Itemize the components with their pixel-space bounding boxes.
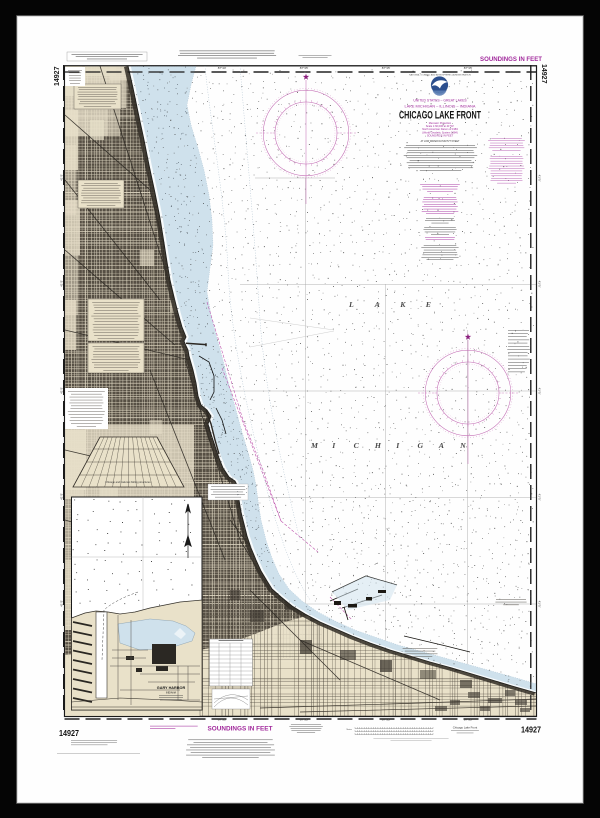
svg-text:87°35': 87°35' [382,718,391,722]
svg-text:41°5': 41°5' [60,174,64,181]
svg-text:SOUNDINGS IN FEET: SOUNDINGS IN FEET [480,56,542,63]
svg-text:Chicago Lake Front: Chicago Lake Front [453,726,478,730]
svg-text:41°5': 41°5' [538,494,542,501]
svg-text:87°35': 87°35' [464,66,473,70]
svg-text:SOUNDINGS IN FEET: SOUNDINGS IN FEET [208,726,273,733]
svg-text:Chicago and Calumet fishing st: Chicago and Calumet fishing structures [105,480,151,484]
svg-text:C: C [354,441,360,450]
svg-text:41°5': 41°5' [60,493,64,500]
svg-text:M: M [310,441,319,450]
svg-text:41°5': 41°5' [60,280,64,287]
svg-text:87°40': 87°40' [218,66,227,70]
svg-text:INDIANA: INDIANA [166,692,176,695]
svg-text:14927: 14927 [540,64,547,84]
svg-text:87°35': 87°35' [464,718,473,722]
svg-text:L: L [348,300,354,309]
svg-text:N: N [459,441,466,450]
svg-text:K: K [399,300,406,309]
svg-text:14927: 14927 [59,729,79,738]
svg-text:CHICAGO LAKE FRONT: CHICAGO LAKE FRONT [399,109,481,121]
svg-text:41°5': 41°5' [538,601,542,608]
svg-text:A: A [438,441,444,450]
svg-text:41°5': 41°5' [60,600,64,607]
svg-text:87°35': 87°35' [382,66,391,70]
svg-text:H: H [374,441,382,450]
svg-text:41°5': 41°5' [538,281,542,288]
svg-text:41°5': 41°5' [538,175,542,182]
svg-text:UNITED STATES – GREAT LAKES: UNITED STATES – GREAT LAKES [413,99,467,103]
svg-text:Meters: Meters [347,728,353,731]
svg-text:14927: 14927 [54,66,61,86]
svg-text:GARY HARBOR: GARY HARBOR [157,686,186,690]
svg-text:LAKE MICHIGAN – ILLINOIS – IND: LAKE MICHIGAN – ILLINOIS – INDIANA [405,104,476,109]
svg-text:87°35': 87°35' [300,66,309,70]
svg-text:87°35': 87°35' [300,718,309,722]
svg-text:G: G [418,441,424,450]
svg-text:A: A [374,300,380,309]
svg-text:14927: 14927 [521,726,541,735]
svg-text:41°5': 41°5' [60,387,64,394]
svg-text:AT LOW WATER DATUM 577.5 FEET: AT LOW WATER DATUM 577.5 FEET [421,140,460,143]
svg-text:41°5': 41°5' [538,388,542,395]
svg-text:E: E [425,300,431,309]
svg-text:SOUNDINGS IN FEET: SOUNDINGS IN FEET [427,133,454,137]
svg-text:NATIONAL OCEANIC AND ATMOSPHER: NATIONAL OCEANIC AND ATMOSPHERIC ADMINIS… [409,74,471,77]
svg-text:87°35': 87°35' [218,718,227,722]
